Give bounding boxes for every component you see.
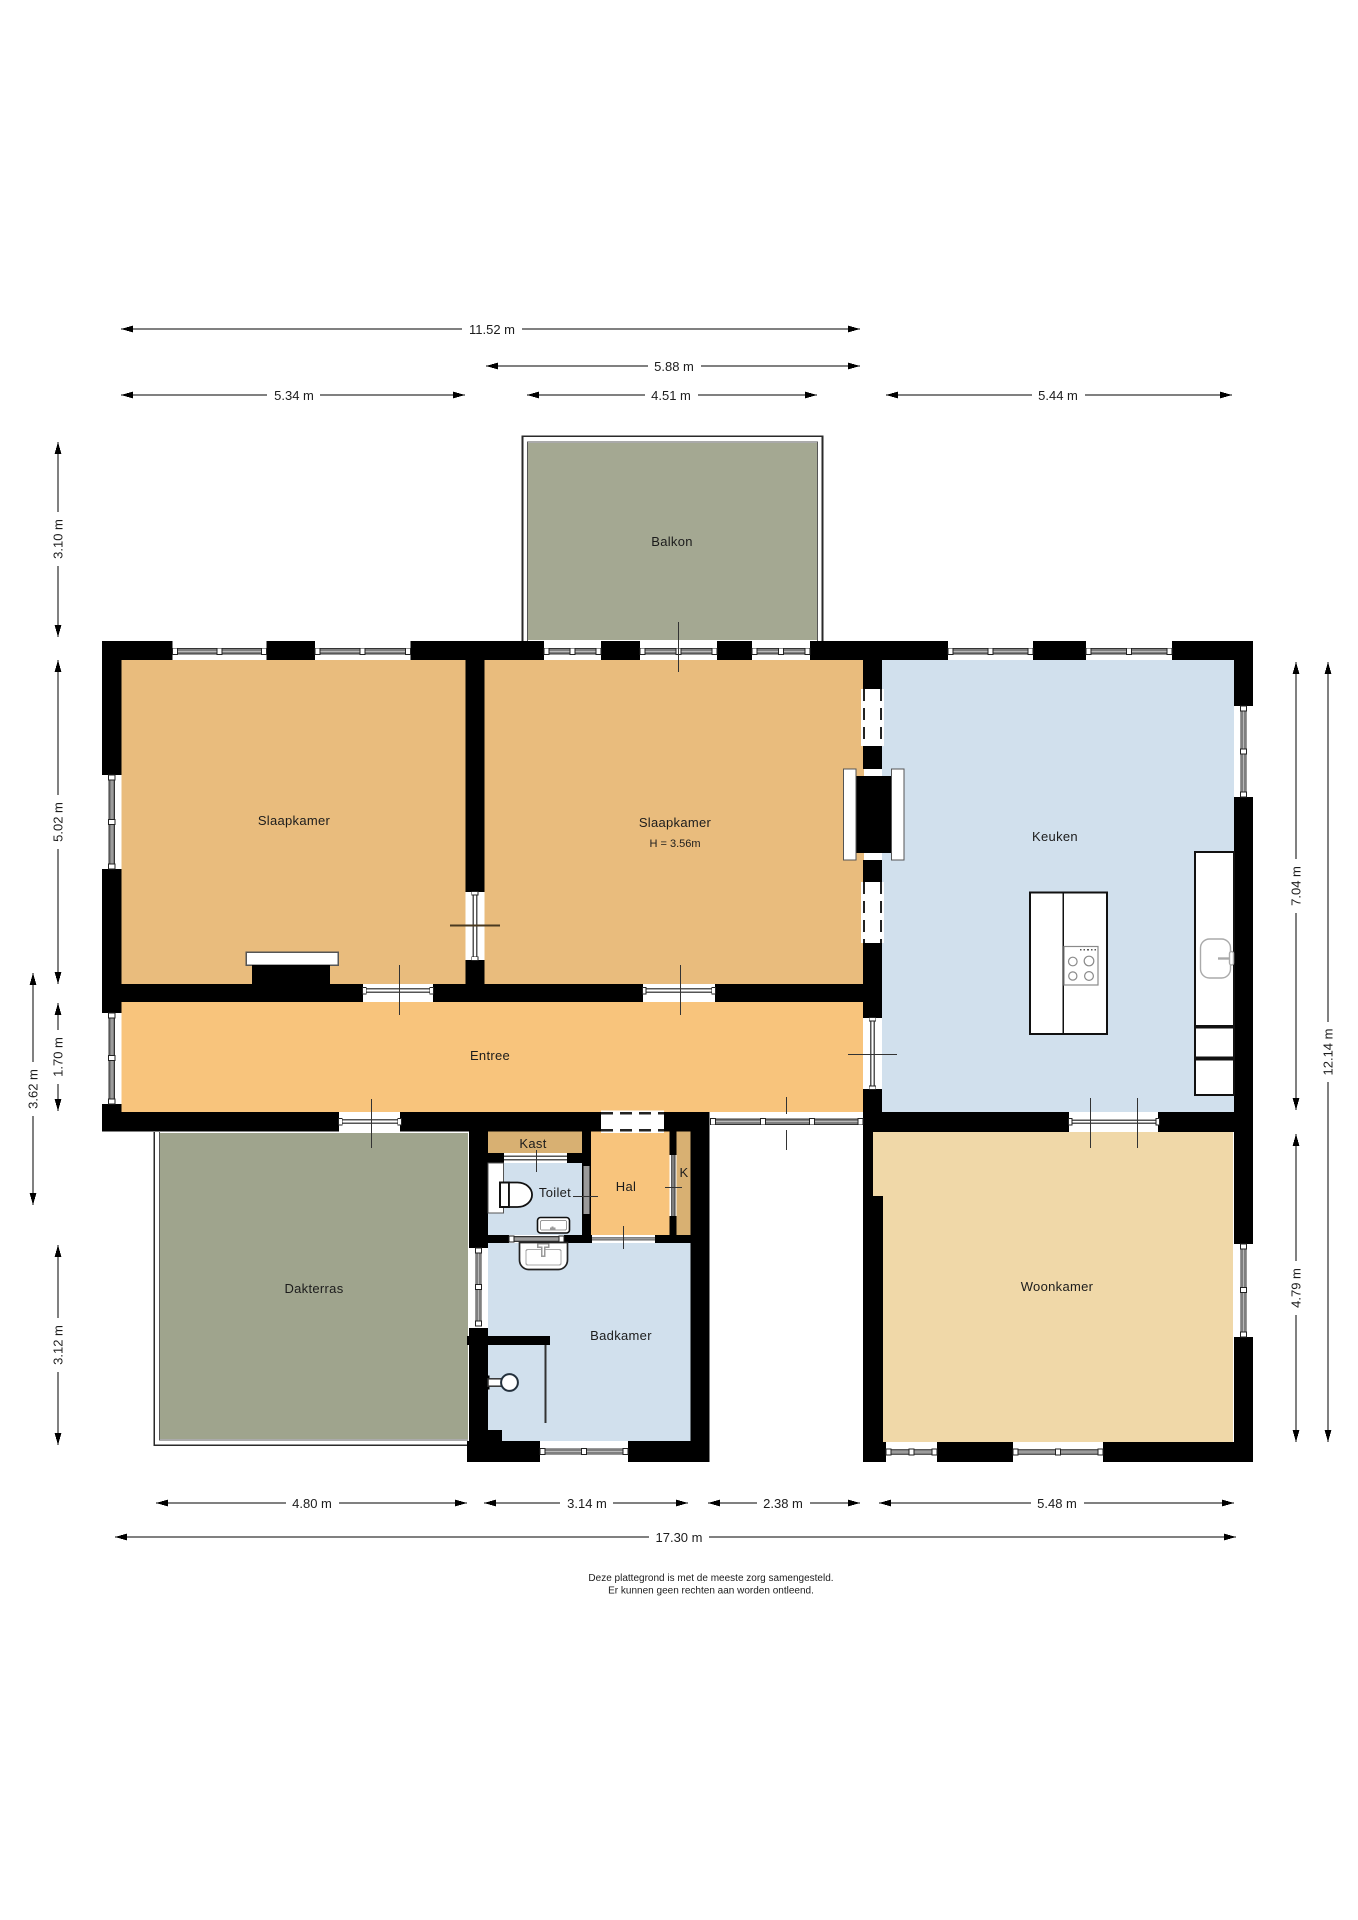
svg-text:1.70 m: 1.70 m (51, 1037, 66, 1077)
svg-text:Slaapkamer: Slaapkamer (258, 813, 331, 828)
svg-text:4.51 m: 4.51 m (651, 388, 691, 403)
svg-text:3.14 m: 3.14 m (567, 1496, 607, 1511)
svg-text:Dakterras: Dakterras (284, 1281, 343, 1296)
svg-text:5.48 m: 5.48 m (1037, 1496, 1077, 1511)
svg-text:Kast: Kast (519, 1136, 546, 1151)
svg-text:Er kunnen geen rechten aan wor: Er kunnen geen rechten aan worden ontlee… (608, 1586, 814, 1597)
svg-text:12.14 m: 12.14 m (1321, 1029, 1336, 1076)
svg-text:4.79 m: 4.79 m (1289, 1268, 1304, 1308)
svg-text:5.34 m: 5.34 m (274, 388, 314, 403)
svg-text:Toilet: Toilet (539, 1185, 571, 1200)
svg-text:5.02 m: 5.02 m (51, 802, 66, 842)
svg-text:Badkamer: Badkamer (590, 1328, 652, 1343)
svg-text:11.52 m: 11.52 m (469, 322, 515, 337)
svg-text:Deze plattegrond is met de mee: Deze plattegrond is met de meeste zorg s… (588, 1573, 833, 1584)
svg-text:3.10 m: 3.10 m (51, 519, 66, 559)
svg-text:Hal: Hal (616, 1179, 636, 1194)
svg-text:2.38 m: 2.38 m (763, 1496, 803, 1511)
svg-text:5.44 m: 5.44 m (1038, 388, 1078, 403)
svg-text:17.30 m: 17.30 m (656, 1530, 703, 1545)
svg-text:Keuken: Keuken (1032, 829, 1078, 844)
svg-text:5.88 m: 5.88 m (654, 359, 694, 374)
svg-text:K: K (680, 1165, 689, 1180)
svg-text:Woonkamer: Woonkamer (1021, 1279, 1094, 1294)
svg-text:3.12 m: 3.12 m (51, 1325, 66, 1365)
svg-text:Slaapkamer: Slaapkamer (639, 815, 712, 830)
svg-text:H = 3.56m: H = 3.56m (649, 838, 700, 850)
svg-text:Entree: Entree (470, 1048, 510, 1063)
svg-text:3.62 m: 3.62 m (26, 1069, 41, 1109)
svg-text:4.80 m: 4.80 m (292, 1496, 332, 1511)
svg-text:Balkon: Balkon (651, 534, 693, 549)
svg-text:7.04 m: 7.04 m (1289, 866, 1304, 906)
